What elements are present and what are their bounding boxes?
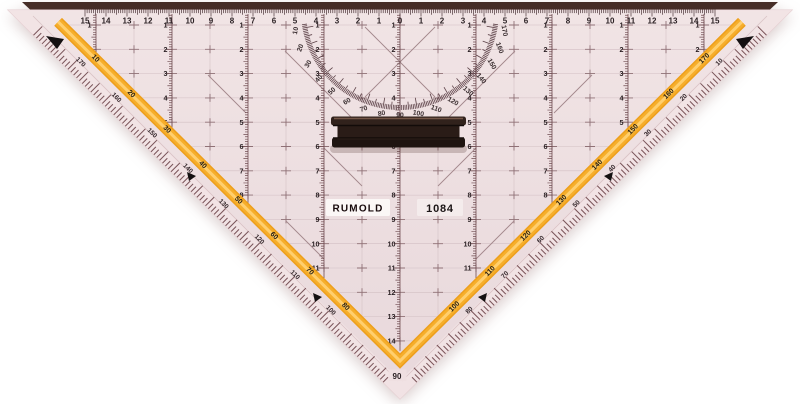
scale-number: 12 [388,288,396,297]
scale-number: 2 [316,45,320,54]
scale-number: 6 [468,142,472,151]
triangle-sheet: 1212345123456781234567891011123456789101… [8,2,792,399]
scale-number: 7 [251,17,256,26]
scale-number: 5 [240,118,244,127]
scale-number: 1 [240,21,244,30]
apex-angle-label: 90 [393,372,402,381]
scale-number: 8 [468,191,472,200]
scale-number: 9 [209,17,214,26]
scale-number: 2 [468,45,472,54]
model-label: 1084 [417,199,463,216]
scale-number: 12 [648,17,657,26]
scale-number: 7 [545,17,550,26]
scale-number: 5 [620,118,624,127]
scale-number: 9 [392,215,396,224]
scale-number: 14 [690,17,699,26]
scale-number: 9 [316,215,320,224]
scale-number: 8 [392,191,396,200]
scale-number: 13 [669,17,678,26]
scale-number: 14 [102,17,111,26]
scale-number: 1 [392,21,396,30]
scale-number: 3 [240,69,244,78]
scale-number: 4 [316,94,320,103]
scale-number: 4 [314,17,319,26]
scale-number: 6 [524,17,529,26]
scale-number: 10 [312,239,320,248]
scale-number: 1 [419,17,424,26]
scale-number: 7 [544,166,548,175]
scale-number: 7 [240,166,244,175]
scale-number: 7 [468,166,472,175]
scale-number: 8 [544,191,548,200]
scale-number: 11 [627,17,636,26]
scale-number: 6 [240,142,244,151]
scale-number: 1 [468,21,472,30]
scale-number: 1 [377,17,382,26]
degree-tick [410,104,411,109]
scale-number: 3 [620,69,624,78]
scale-number: 3 [335,17,340,26]
scale-number: 2 [620,45,624,54]
scale-number: 2 [240,45,244,54]
scale-number: 3 [544,69,548,78]
scale-number: 4 [620,94,624,103]
scale-number: 6 [272,17,277,26]
scale-number: 7 [316,166,320,175]
scale-number: 3 [392,69,396,78]
scale-number: 1 [620,21,624,30]
scale-number: 4 [392,94,396,103]
scale-number: 0 [398,17,403,26]
brand-text: RUMOLD [332,204,383,215]
scale-number: 15 [711,17,720,26]
scale-number: 10 [606,17,615,26]
scale-number: 11 [464,264,472,273]
scale-number: 8 [230,17,235,26]
scale-number: 11 [388,264,396,273]
scale-number: 3 [461,17,466,26]
scale-number: 7 [392,166,396,175]
scale-number: 5 [316,118,320,127]
scale-number: 6 [316,142,320,151]
model-text: 1084 [426,203,454,215]
scale-number: 2 [164,45,168,54]
scale-number: 13 [388,312,396,321]
scale-number: 4 [482,17,487,26]
photo-stage: 1212345123456781234567891011123456789101… [0,0,800,404]
scale-number: 11 [165,17,174,26]
scale-number: 10 [292,26,300,35]
scale-number: 5 [544,118,548,127]
scale-number: 10 [464,239,472,248]
scale-number: 2 [544,45,548,54]
degree-tick [390,104,391,109]
scale-number: 2 [440,17,445,26]
handle[interactable] [330,117,467,154]
set-square: 1212345123456781234567891011123456789101… [0,0,800,404]
top-edge-strip [22,2,778,10]
scale-number: 2 [356,17,361,26]
scale-number: 6 [544,142,548,151]
scale-number: 5 [293,17,298,26]
scale-number: 5 [468,118,472,127]
scale-number: 8 [316,191,320,200]
scale-number: 3 [164,69,168,78]
scale-number: 4 [240,94,244,103]
scale-number: 2 [696,45,700,54]
scale-number: 10 [388,239,396,248]
scale-number: 15 [81,17,90,26]
scale-number: 9 [468,215,472,224]
scale-number: 4 [544,94,548,103]
scale-number: 4 [164,94,168,103]
scale-number: 2 [392,45,396,54]
scale-number: 12 [144,17,153,26]
scale-number: 9 [587,17,592,26]
scale-number: 10 [186,17,195,26]
brand-label: RUMOLD [326,199,390,216]
scale-number: 8 [566,17,571,26]
scale-number: 13 [123,17,132,26]
